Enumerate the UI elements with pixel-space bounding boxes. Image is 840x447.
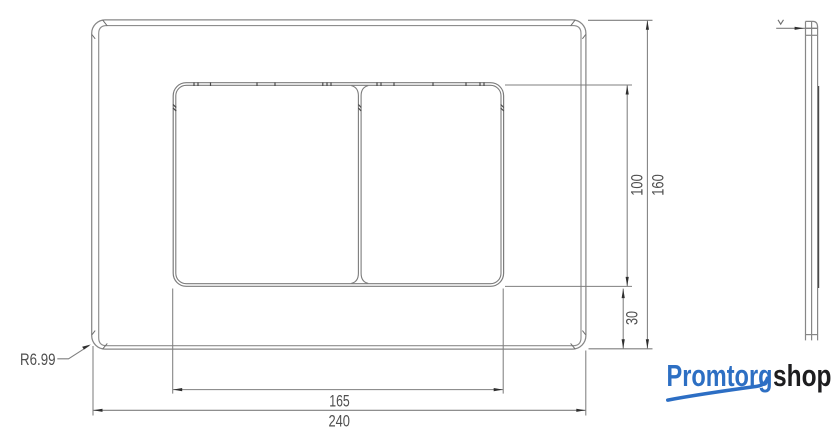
svg-text:160: 160 — [650, 174, 668, 196]
svg-text:shop: shop — [773, 359, 832, 393]
svg-text:30: 30 — [624, 311, 642, 325]
svg-text:240: 240 — [328, 412, 350, 430]
svg-text:R6.99: R6.99 — [20, 351, 56, 369]
svg-text:100: 100 — [629, 174, 647, 196]
svg-text:165: 165 — [329, 392, 350, 410]
